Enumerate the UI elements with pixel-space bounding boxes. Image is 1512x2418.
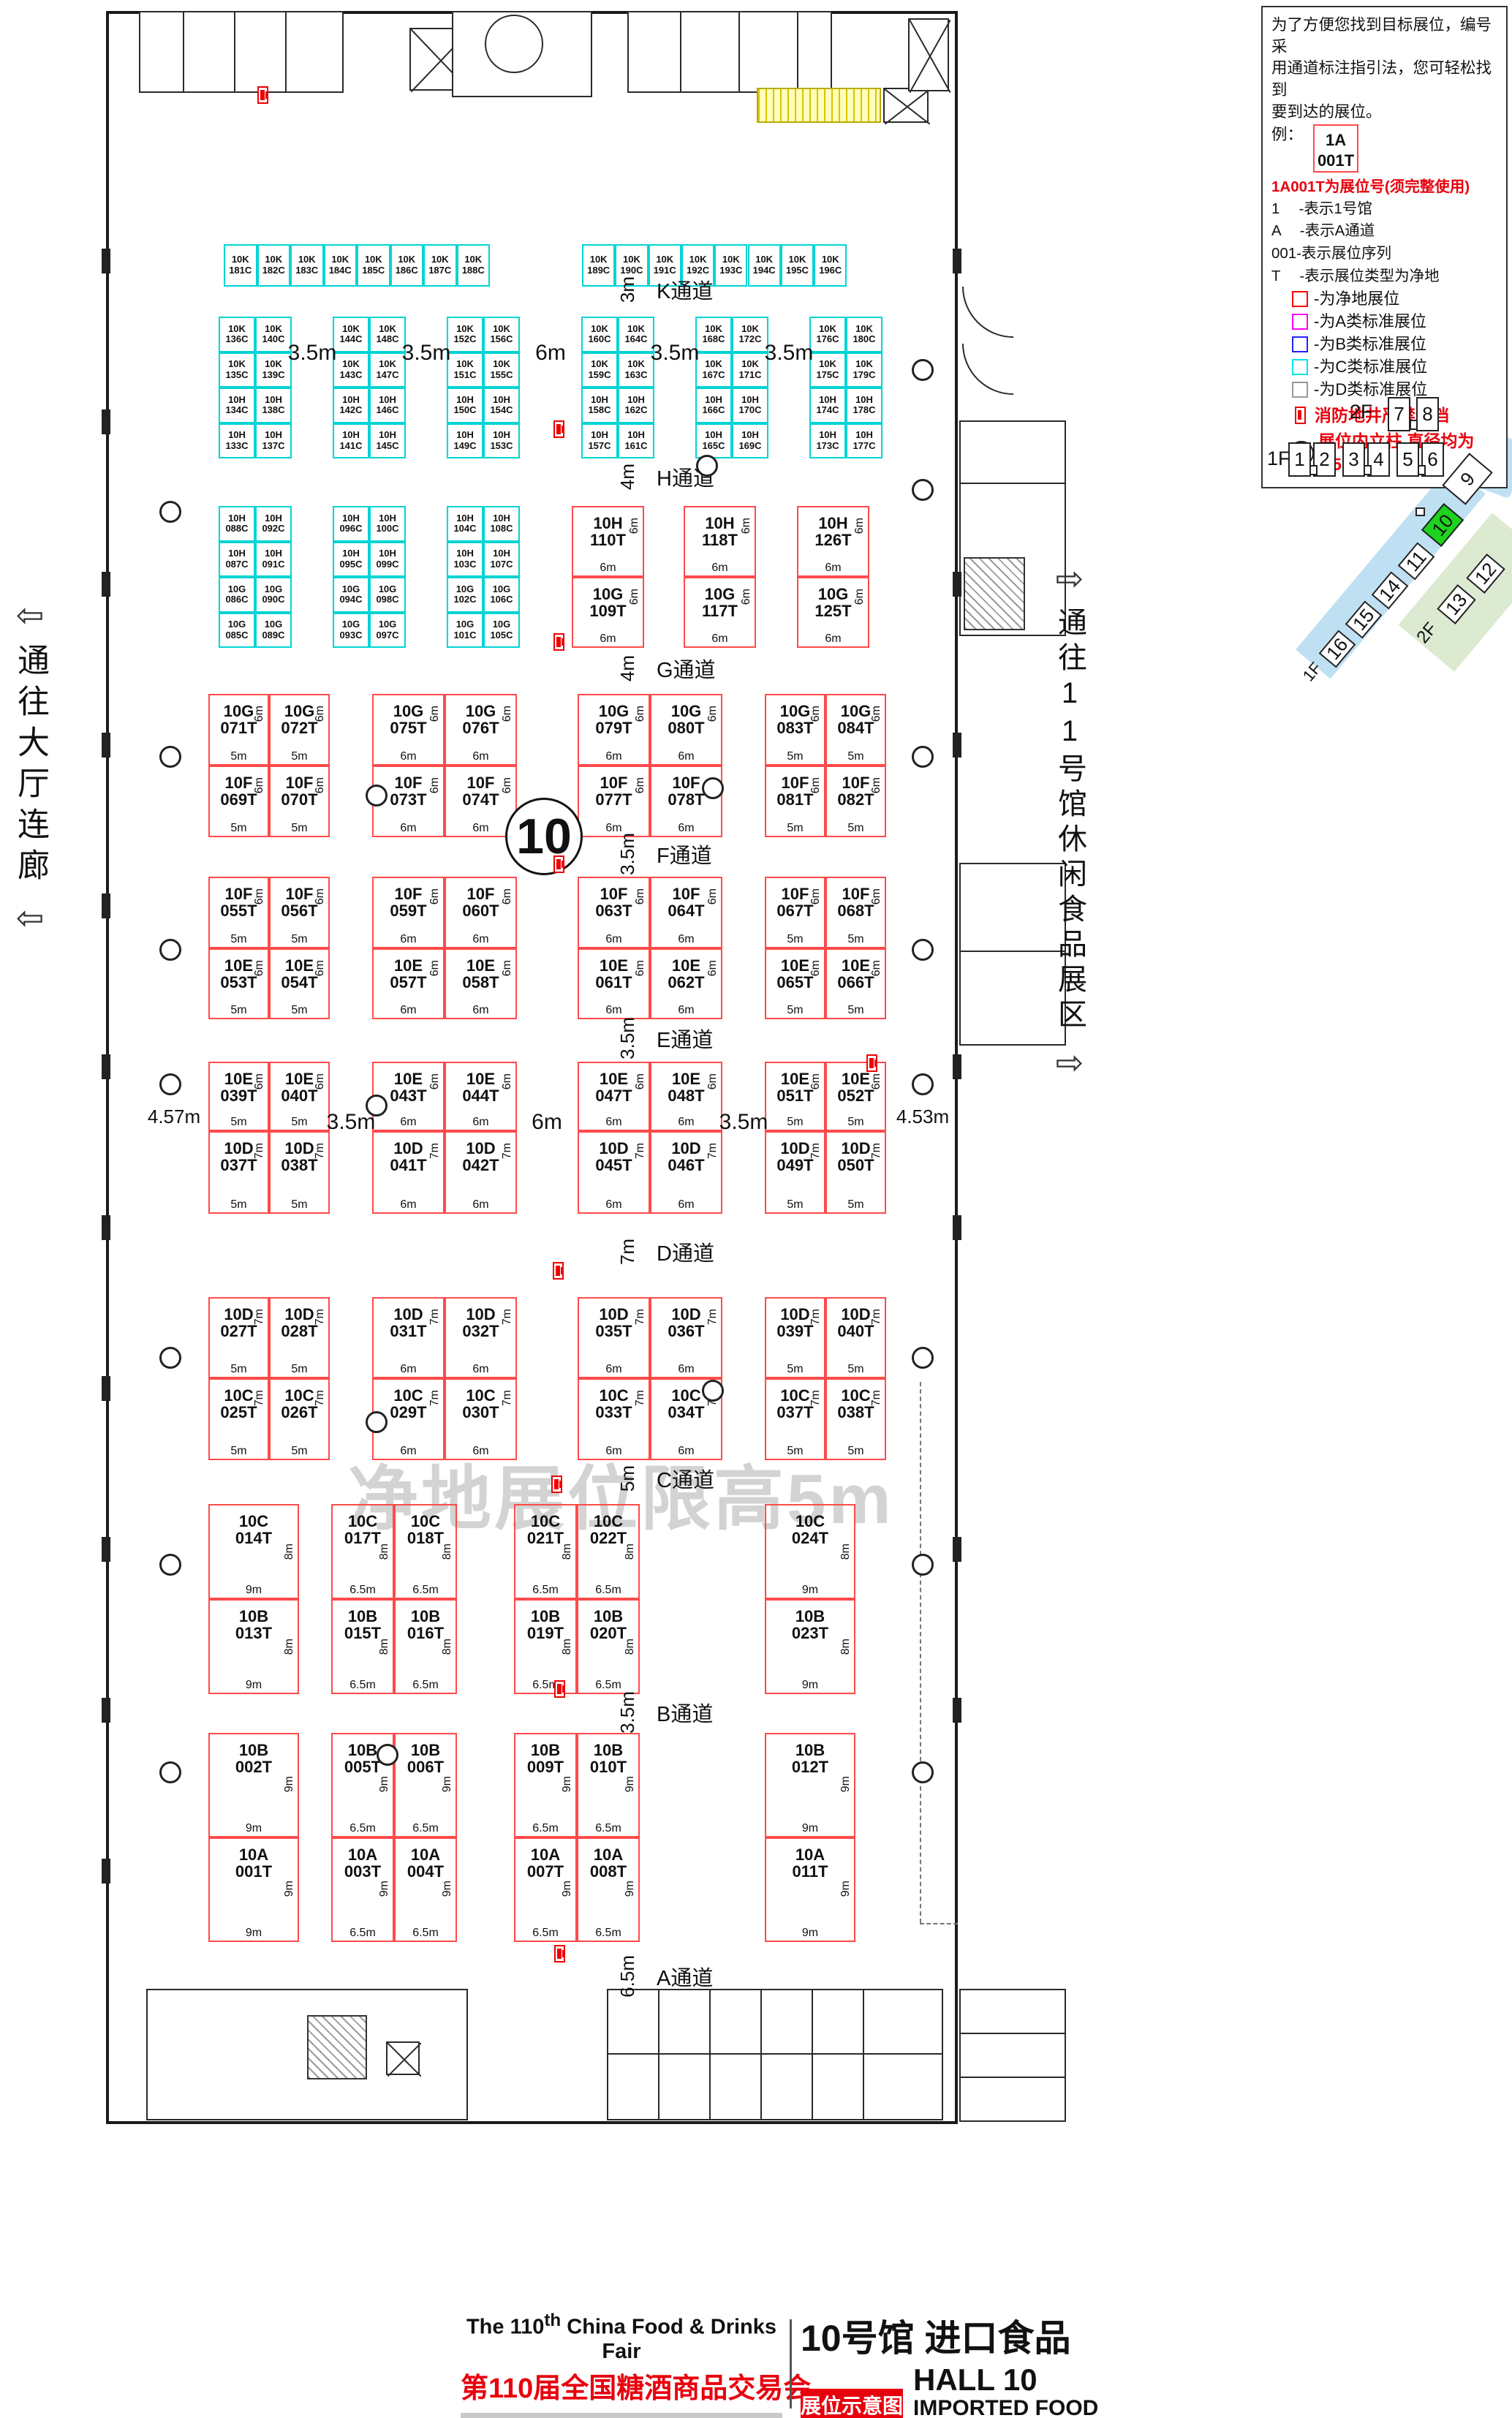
- booth-cell: 10G075T6m6m: [372, 694, 445, 766]
- booth-cell: 10D035T7m6m: [578, 1297, 650, 1378]
- aisle-label: 3.5mF通道: [616, 831, 712, 877]
- booth-code: 101C: [453, 630, 476, 641]
- booth-bottom-dim: 6.5m: [578, 1584, 638, 1597]
- booth-code: 10C022T: [578, 1513, 638, 1546]
- booth-cell: 10E051T6m5m: [765, 1062, 825, 1131]
- door-tick: [953, 249, 961, 273]
- booth-code: 092C: [262, 524, 284, 534]
- booth-code: 10K: [232, 254, 249, 265]
- booth-group: 10B005T9m6.5m10B006T9m6.5m10A003T9m6.5m1…: [331, 1733, 457, 1942]
- pillar-icon: [159, 501, 181, 523]
- booth-bottom-dim: 5m: [271, 1198, 328, 1212]
- lobby-circle: [485, 15, 543, 73]
- booth-code: 157C: [588, 441, 611, 452]
- booth-side-dim: 7m: [253, 1309, 266, 1325]
- booth-cell: 10C018T8m6.5m: [394, 1504, 457, 1599]
- booth-group: 10D039T7m5m10D040T7m5m10C037T7m5m10C038T…: [765, 1297, 886, 1460]
- aisle-width-dim: 4m: [616, 655, 639, 681]
- booth-code: 185C: [362, 265, 385, 276]
- booth-code: 10B006T: [396, 1742, 456, 1775]
- booth-cell: 10K143C: [333, 352, 369, 388]
- booth-code: 10H: [342, 430, 360, 441]
- booth-bottom-dim: 5m: [271, 1363, 328, 1376]
- booth-side-dim: 8m: [624, 1639, 637, 1655]
- booth-cell: 10H108C: [483, 506, 520, 542]
- booth-side-dim: 7m: [501, 1143, 514, 1159]
- booth-code: 097C: [376, 630, 398, 641]
- booth-code: 089C: [262, 630, 284, 641]
- booth-side-dim: 8m: [441, 1639, 454, 1655]
- aisle-width-dim: 7m: [616, 1239, 639, 1265]
- booth-cell: 10H145C: [369, 423, 406, 459]
- booth-code: 180C: [853, 334, 875, 345]
- booth-bottom-dim: 5m: [271, 1116, 328, 1129]
- structure-wall-line: [812, 1989, 813, 2120]
- booth-code: 10H: [705, 430, 722, 441]
- booth-side-dim: 9m: [561, 1881, 574, 1897]
- booth-side-dim: 8m: [441, 1544, 454, 1560]
- booth-cell: 10K188C: [457, 244, 491, 287]
- booth-side-dim: 6m: [706, 888, 719, 904]
- booth-side-dim: 6m: [253, 888, 266, 904]
- booth-code: 085C: [225, 630, 248, 641]
- booth-side-dim: 7m: [501, 1390, 514, 1406]
- booth-cell: 10D027T7m5m: [208, 1297, 269, 1378]
- shaft-cross-box: [386, 2041, 420, 2075]
- booth-cell: 10K176C: [809, 317, 846, 352]
- booth-cell: 10E054T6m5m: [269, 948, 330, 1019]
- booth-code: 104C: [453, 524, 476, 534]
- booth-cell: 10A011T9m9m: [765, 1837, 855, 1942]
- booth-group: 10C014T8m9m10B013T8m9m: [208, 1504, 299, 1694]
- structure-wall-line: [959, 2077, 1066, 2078]
- booth-side-dim: 7m: [314, 1390, 327, 1406]
- aisle-name: F通道: [657, 839, 712, 869]
- booth-code: 143C: [339, 370, 362, 381]
- booth-cell: 10F056T6m5m: [269, 877, 330, 948]
- booth-bottom-dim: 6m: [579, 1116, 649, 1129]
- fire-well-icon: [1295, 407, 1306, 424]
- booth-code: 10K: [656, 254, 673, 265]
- booth-bottom-dim: 6m: [579, 750, 649, 763]
- pillar-icon: [912, 479, 934, 501]
- booth-code: 10H: [855, 430, 873, 441]
- booth-bottom-dim: 5m: [827, 1198, 885, 1212]
- booth-code: 135C: [225, 370, 248, 381]
- booth-side-dim: 7m: [501, 1309, 514, 1325]
- legend-key: A -表示A通道: [1271, 220, 1499, 243]
- booth-code: 10H: [705, 395, 722, 406]
- booth-code: 10K: [819, 359, 836, 370]
- booth-code: 10K: [456, 324, 474, 335]
- booth-side-dim: 6m: [706, 960, 719, 976]
- booth-code: 148C: [376, 334, 398, 345]
- booth-side-dim: 6m: [501, 1073, 514, 1089]
- booth-code: 151C: [453, 370, 476, 381]
- booth-code: 10K: [822, 254, 839, 265]
- map-tag-badge: 展位示意图: [801, 2389, 903, 2418]
- booth-cell: 10G084T6m5m: [825, 694, 886, 766]
- booth-bottom-dim: 5m: [210, 933, 268, 946]
- legend-item-label: -为A类标准展位: [1314, 311, 1426, 333]
- legend-color-items: -为净地展位-为A类标准展位-为B类标准展位-为C类标准展位-为D类标准展位: [1271, 288, 1499, 401]
- booth-side-dim: 7m: [253, 1143, 266, 1159]
- booth-bottom-dim: 6.5m: [515, 1927, 575, 1940]
- booth-side-dim: 6m: [634, 960, 647, 976]
- booth-bottom-dim: 5m: [210, 1198, 268, 1212]
- booth-code: 176C: [816, 334, 839, 345]
- boundary-dashed-line: [920, 1382, 921, 1923]
- booth-side-dim: 9m: [624, 1881, 637, 1897]
- booth-bottom-dim: 5m: [271, 822, 328, 835]
- booth-code: 10H: [379, 513, 396, 524]
- booth-code: 10H: [627, 430, 645, 441]
- booth-bottom-dim: 6m: [579, 1363, 649, 1376]
- booth-bottom-dim: 6m: [446, 1116, 515, 1129]
- booth-group: 10D027T7m5m10D028T7m5m10C025T7m5m10C026T…: [208, 1297, 330, 1460]
- booth-bottom-dim: 5m: [766, 1004, 824, 1017]
- legend-color-swatch: [1292, 314, 1308, 330]
- booth-group: 10C021T8m6.5m10C022T8m6.5m10B019T8m6.5m1…: [514, 1504, 640, 1694]
- minimap-hall-3: 3: [1342, 442, 1365, 477]
- booth-code: 10H: [265, 513, 282, 524]
- booth-bottom-dim: 5m: [766, 933, 824, 946]
- booth-code: 144C: [339, 334, 362, 345]
- pillar-icon: [912, 1761, 934, 1783]
- booth-group: 10B009T9m6.5m10B010T9m6.5m10A007T9m6.5m1…: [514, 1733, 640, 1942]
- hall-subtitle-en: IMPORTED FOOD: [913, 2396, 1098, 2418]
- booth-cell: 10D045T7m6m: [578, 1131, 650, 1214]
- booth-side-dim: 9m: [839, 1881, 853, 1897]
- booth-code: 10G: [493, 619, 511, 630]
- booth-code: 10H: [456, 395, 474, 406]
- booth-cell: 10K172C: [732, 317, 768, 352]
- booth-code: 10K: [228, 324, 246, 335]
- booth-code: 10K: [855, 359, 873, 370]
- booth-code: 10G: [228, 584, 246, 595]
- booth-group: 10E039T6m5m10E040T6m5m10D037T7m5m10D038T…: [208, 1062, 330, 1214]
- booth-code: 10H: [819, 430, 836, 441]
- booth-bottom-dim: 6m: [374, 1004, 443, 1017]
- booth-cell: 10K171C: [732, 352, 768, 388]
- booth-group: 10G079T6m6m10G080T6m6m10F077T6m6m10F078T…: [578, 694, 722, 837]
- booth-cell: 10C017T8m6.5m: [331, 1504, 394, 1599]
- booth-code: 174C: [816, 405, 839, 416]
- booth-bottom-dim: 6m: [798, 562, 868, 575]
- booth-cell: 10H092C: [255, 506, 292, 542]
- booth-bottom-dim: 6.5m: [333, 1584, 393, 1597]
- booth-group: 10F063T6m6m10F064T6m6m10E061T6m6m10E062T…: [578, 877, 722, 1019]
- booth-bottom-dim: 5m: [766, 1116, 824, 1129]
- door-tick: [102, 733, 110, 757]
- booth-cell: 10K180C: [846, 317, 882, 352]
- legend-item-label: -为净地展位: [1314, 288, 1399, 310]
- booth-code: 195C: [786, 265, 809, 276]
- booth-bottom-dim: 5m: [271, 933, 328, 946]
- booth-code: 10G: [379, 584, 397, 595]
- booth-bottom-dim: 5m: [827, 750, 885, 763]
- booth-code: 10H: [493, 548, 510, 559]
- booth-side-dim: 7m: [706, 1143, 719, 1159]
- booth-code: 156C: [490, 334, 513, 345]
- booth-code: 10G: [493, 584, 511, 595]
- booth-side-dim: 7m: [809, 1390, 823, 1406]
- structure-wall-line: [797, 11, 798, 93]
- booth-bottom-dim: 6m: [374, 1445, 443, 1458]
- booth-side-dim: 6m: [501, 888, 514, 904]
- booth-group: 10F055T6m5m10F056T6m5m10E053T6m5m10E054T…: [208, 877, 330, 1019]
- booth-side-dim: 6m: [809, 1073, 823, 1089]
- booth-cell: 10K168C: [695, 317, 732, 352]
- minimap-notch: [1415, 507, 1425, 516]
- booth-bottom-dim: 6m: [374, 933, 443, 946]
- booth-cell: 10H087C: [219, 542, 255, 578]
- booth-code: 10B019T: [515, 1608, 575, 1641]
- booth-cell: 10K147C: [369, 352, 406, 388]
- booth-code: 168C: [702, 334, 725, 345]
- booth-code: 10H: [591, 430, 608, 441]
- booth-bottom-dim: 5m: [210, 1445, 268, 1458]
- pillar-icon: [702, 777, 724, 799]
- booth-bottom-dim: 6m: [651, 1198, 721, 1212]
- booth-bottom-dim: 6m: [446, 750, 515, 763]
- booth-bottom-dim: 5m: [766, 822, 824, 835]
- booth-side-dim: 6m: [634, 1073, 647, 1089]
- booth-cell: 10H134C: [219, 388, 255, 423]
- booth-bottom-dim: 5m: [210, 1363, 268, 1376]
- fire-well-icon: [553, 420, 564, 438]
- legend-item: -为D类标准展位: [1271, 379, 1499, 401]
- pillar-icon: [912, 746, 934, 768]
- booth-side-dim: 6m: [706, 1073, 719, 1089]
- pillar-icon: [159, 1554, 181, 1576]
- booth-code: 10A001T: [210, 1846, 298, 1880]
- aisle-width-dim: 3.5m: [616, 833, 639, 875]
- booth-cell: 10G117T6m6m: [684, 577, 756, 648]
- corridor-right-label: 通往11号馆休闲食品展区: [1048, 607, 1091, 1034]
- booth-cell: 10F077T6m6m: [578, 766, 650, 837]
- booth-cell: 10F068T6m5m: [825, 877, 886, 948]
- booth-code: 139C: [262, 370, 284, 381]
- booth-bottom-dim: 6m: [685, 562, 755, 575]
- door-arc: [962, 344, 1013, 395]
- booth-code: 141C: [339, 441, 362, 452]
- fire-well-icon: [554, 1945, 565, 1962]
- booth-bottom-dim: 6m: [573, 632, 643, 646]
- booth-bottom-dim: 5m: [766, 1198, 824, 1212]
- booth-side-dim: 6m: [809, 777, 823, 793]
- minimap-notch: [1364, 465, 1372, 475]
- gap-dimension-label: 4.53m: [896, 1106, 949, 1128]
- booth-code: 10K: [265, 254, 282, 265]
- booth-side-dim: 7m: [634, 1390, 647, 1406]
- booth-cell: 10H157C: [581, 423, 618, 459]
- booth-side-dim: 6m: [853, 518, 866, 534]
- booth-side-dim: 6m: [870, 960, 883, 976]
- gap-dimension-label: 3.5m: [327, 1110, 376, 1135]
- booth-bottom-dim: 6m: [374, 1363, 443, 1376]
- booth-side-dim: 6m: [809, 706, 823, 722]
- booth-cell: 10C026T7m5m: [269, 1378, 330, 1460]
- booth-side-dim: 6m: [634, 777, 647, 793]
- booth-side-dim: 8m: [839, 1639, 853, 1655]
- booth-code: 105C: [490, 630, 513, 641]
- aisle-name: E通道: [657, 1023, 713, 1054]
- structure-wall-line: [959, 2033, 1066, 2034]
- booth-code: 10H: [456, 513, 474, 524]
- fire-well-icon: [553, 1262, 564, 1280]
- legend-color-swatch: [1292, 382, 1308, 398]
- booth-side-dim: 6m: [740, 589, 753, 605]
- booth-code: 10H: [342, 513, 360, 524]
- booth-side-dim: 9m: [378, 1776, 391, 1792]
- booth-cell: 10H103C: [447, 542, 483, 578]
- gap-dimension-label: 6m: [535, 341, 566, 366]
- booth-code: 10G: [342, 584, 360, 595]
- booth-cell: 10H169C: [732, 423, 768, 459]
- booth-side-dim: 8m: [624, 1544, 637, 1560]
- pillar-icon: [912, 359, 934, 381]
- booth-cell: 10D037T7m5m: [208, 1131, 269, 1214]
- booth-cell: 10E066T6m5m: [825, 948, 886, 1019]
- booth-cell: 10K196C: [814, 244, 847, 287]
- booth-code: 102C: [453, 594, 476, 605]
- booth-side-dim: 7m: [428, 1143, 442, 1159]
- booth-code: 184C: [329, 265, 352, 276]
- footer-fair-title: The 110th China Food & Drinks Fair 第110届…: [461, 2311, 782, 2418]
- booth-cell: 10D046T7m6m: [650, 1131, 722, 1214]
- venue-bar: 中国西部国际博览城: [461, 2413, 782, 2418]
- booth-cell: 10K135C: [219, 352, 255, 388]
- booth-bottom-dim: 6.5m: [333, 1822, 393, 1835]
- aisle-label: 3.5mE通道: [616, 1015, 713, 1062]
- booth-cell: 10E057T6m6m: [372, 948, 445, 1019]
- booth-code: 159C: [588, 370, 611, 381]
- booth-code: 10H: [819, 395, 836, 406]
- booth-side-dim: 6m: [809, 960, 823, 976]
- booth-code: 153C: [490, 441, 513, 452]
- booth-cell: 10C037T7m5m: [765, 1378, 825, 1460]
- legend-example-label: 例：: [1271, 124, 1303, 146]
- booth-cell: 10F064T6m6m: [650, 877, 722, 948]
- booth-group: 10H126T6m6m10G125T6m6m: [797, 506, 869, 648]
- aisle-label: 4mG通道: [616, 645, 716, 692]
- aisle-name: C通道: [657, 1463, 714, 1494]
- booth-code: 189C: [587, 265, 610, 276]
- booth-code: 10K: [493, 324, 510, 335]
- booth-code: 10K: [755, 254, 773, 265]
- booth-code: 158C: [588, 405, 611, 416]
- aisle-label: 5mC通道: [616, 1455, 714, 1502]
- booth-code: 10K: [379, 359, 396, 370]
- booth-side-dim: 9m: [441, 1776, 454, 1792]
- booth-cell: 10E053T6m5m: [208, 948, 269, 1019]
- booth-side-dim: 8m: [283, 1639, 296, 1655]
- floor-plan-hall-10: 为了方便您找到目标展位，编号采 用通道标注指引法，您可轻松找到 要到达的展位。 …: [0, 0, 1512, 2418]
- booth-cell: 10H096C: [333, 506, 369, 542]
- booth-code: 106C: [490, 594, 513, 605]
- booth-code: 086C: [225, 594, 248, 605]
- booth-code: 10B023T: [766, 1608, 854, 1641]
- booth-code: 10H: [228, 430, 246, 441]
- booth-bottom-dim: 5m: [271, 750, 328, 763]
- booth-side-dim: 9m: [283, 1881, 296, 1897]
- booth-bottom-dim: 9m: [210, 1927, 298, 1940]
- booth-code: 10H: [627, 395, 645, 406]
- booth-cell: 10K164C: [618, 317, 654, 352]
- booth-cell: 10G105C: [483, 613, 520, 649]
- booth-code: 10K: [342, 359, 360, 370]
- booth-cell: 10K179C: [846, 352, 882, 388]
- booth-side-dim: 6m: [428, 888, 442, 904]
- aisle-width-dim: 6.5m: [616, 1955, 639, 1998]
- booth-cell: 10K160C: [581, 317, 618, 352]
- booth-code: 166C: [702, 405, 725, 416]
- booth-code: 088C: [225, 524, 248, 534]
- booth-cell: 10G094C: [333, 577, 369, 613]
- aisle-name: D通道: [657, 1236, 714, 1267]
- booth-code: 10G: [456, 619, 475, 630]
- legend-item-label: -为C类标准展位: [1314, 356, 1427, 378]
- booth-cell: 10H162C: [618, 388, 654, 423]
- booth-code: 175C: [816, 370, 839, 381]
- aisle-label: 7mD通道: [616, 1228, 714, 1275]
- fire-well-icon: [553, 855, 564, 873]
- booth-cell: 10A004T9m6.5m: [394, 1837, 457, 1942]
- booth-bottom-dim: 5m: [210, 750, 268, 763]
- booth-side-dim: 6m: [870, 777, 883, 793]
- door-tick: [102, 572, 110, 597]
- booth-cell: 10E040T6m5m: [269, 1062, 330, 1131]
- booth-cell: 10B016T8m6.5m: [394, 1599, 457, 1694]
- booth-code: 10K: [741, 324, 759, 335]
- legend-item: -为B类标准展位: [1271, 333, 1499, 356]
- structure-room: [959, 1989, 1066, 2122]
- booth-cell: 10B010T9m6.5m: [577, 1733, 640, 1837]
- fire-well-icon: [553, 633, 564, 651]
- gap-dimension-label: 3.5m: [719, 1110, 768, 1135]
- booth-bottom-dim: 5m: [766, 750, 824, 763]
- booth-cell: 10F078T6m6m: [650, 766, 722, 837]
- booth-group: 10B002T9m9m10A001T9m9m: [208, 1733, 299, 1942]
- legend-text-line: 为了方便您找到目标展位，编号采: [1271, 15, 1499, 58]
- booth-bottom-dim: 6.5m: [515, 1584, 575, 1597]
- booth-code: 181C: [229, 265, 252, 276]
- booth-cell: 10C024T8m9m: [765, 1504, 855, 1599]
- booth-cell: 10H178C: [846, 388, 882, 423]
- minimap-floor-label: 1F: [1267, 447, 1290, 470]
- booth-cell: 10B009T9m6.5m: [514, 1733, 577, 1837]
- booth-cell: 10A007T9m6.5m: [514, 1837, 577, 1942]
- pillar-icon: [912, 1554, 934, 1576]
- booth-bottom-dim: 6.5m: [396, 1927, 456, 1940]
- arrow-right-icon: ⇨: [1044, 562, 1095, 595]
- door-tick: [953, 1537, 961, 1562]
- booth-cell: 10G102C: [447, 577, 483, 613]
- booth-code: 10K: [623, 254, 640, 265]
- booth-bottom-dim: 9m: [210, 1679, 298, 1692]
- booth-bottom-dim: 6m: [651, 1363, 721, 1376]
- fire-well-icon: [554, 1680, 565, 1698]
- pillar-icon: [366, 785, 388, 806]
- booth-code: 096C: [339, 524, 362, 534]
- booth-cell: 10A001T9m9m: [208, 1837, 299, 1942]
- booth-group: 10F067T6m5m10F068T6m5m10E065T6m5m10E066T…: [765, 877, 886, 1019]
- booth-cell: 10H146C: [369, 388, 406, 423]
- booth-cell: 10K193C: [714, 244, 747, 287]
- booth-cell: 10F059T6m6m: [372, 877, 445, 948]
- booth-code: 091C: [262, 559, 284, 570]
